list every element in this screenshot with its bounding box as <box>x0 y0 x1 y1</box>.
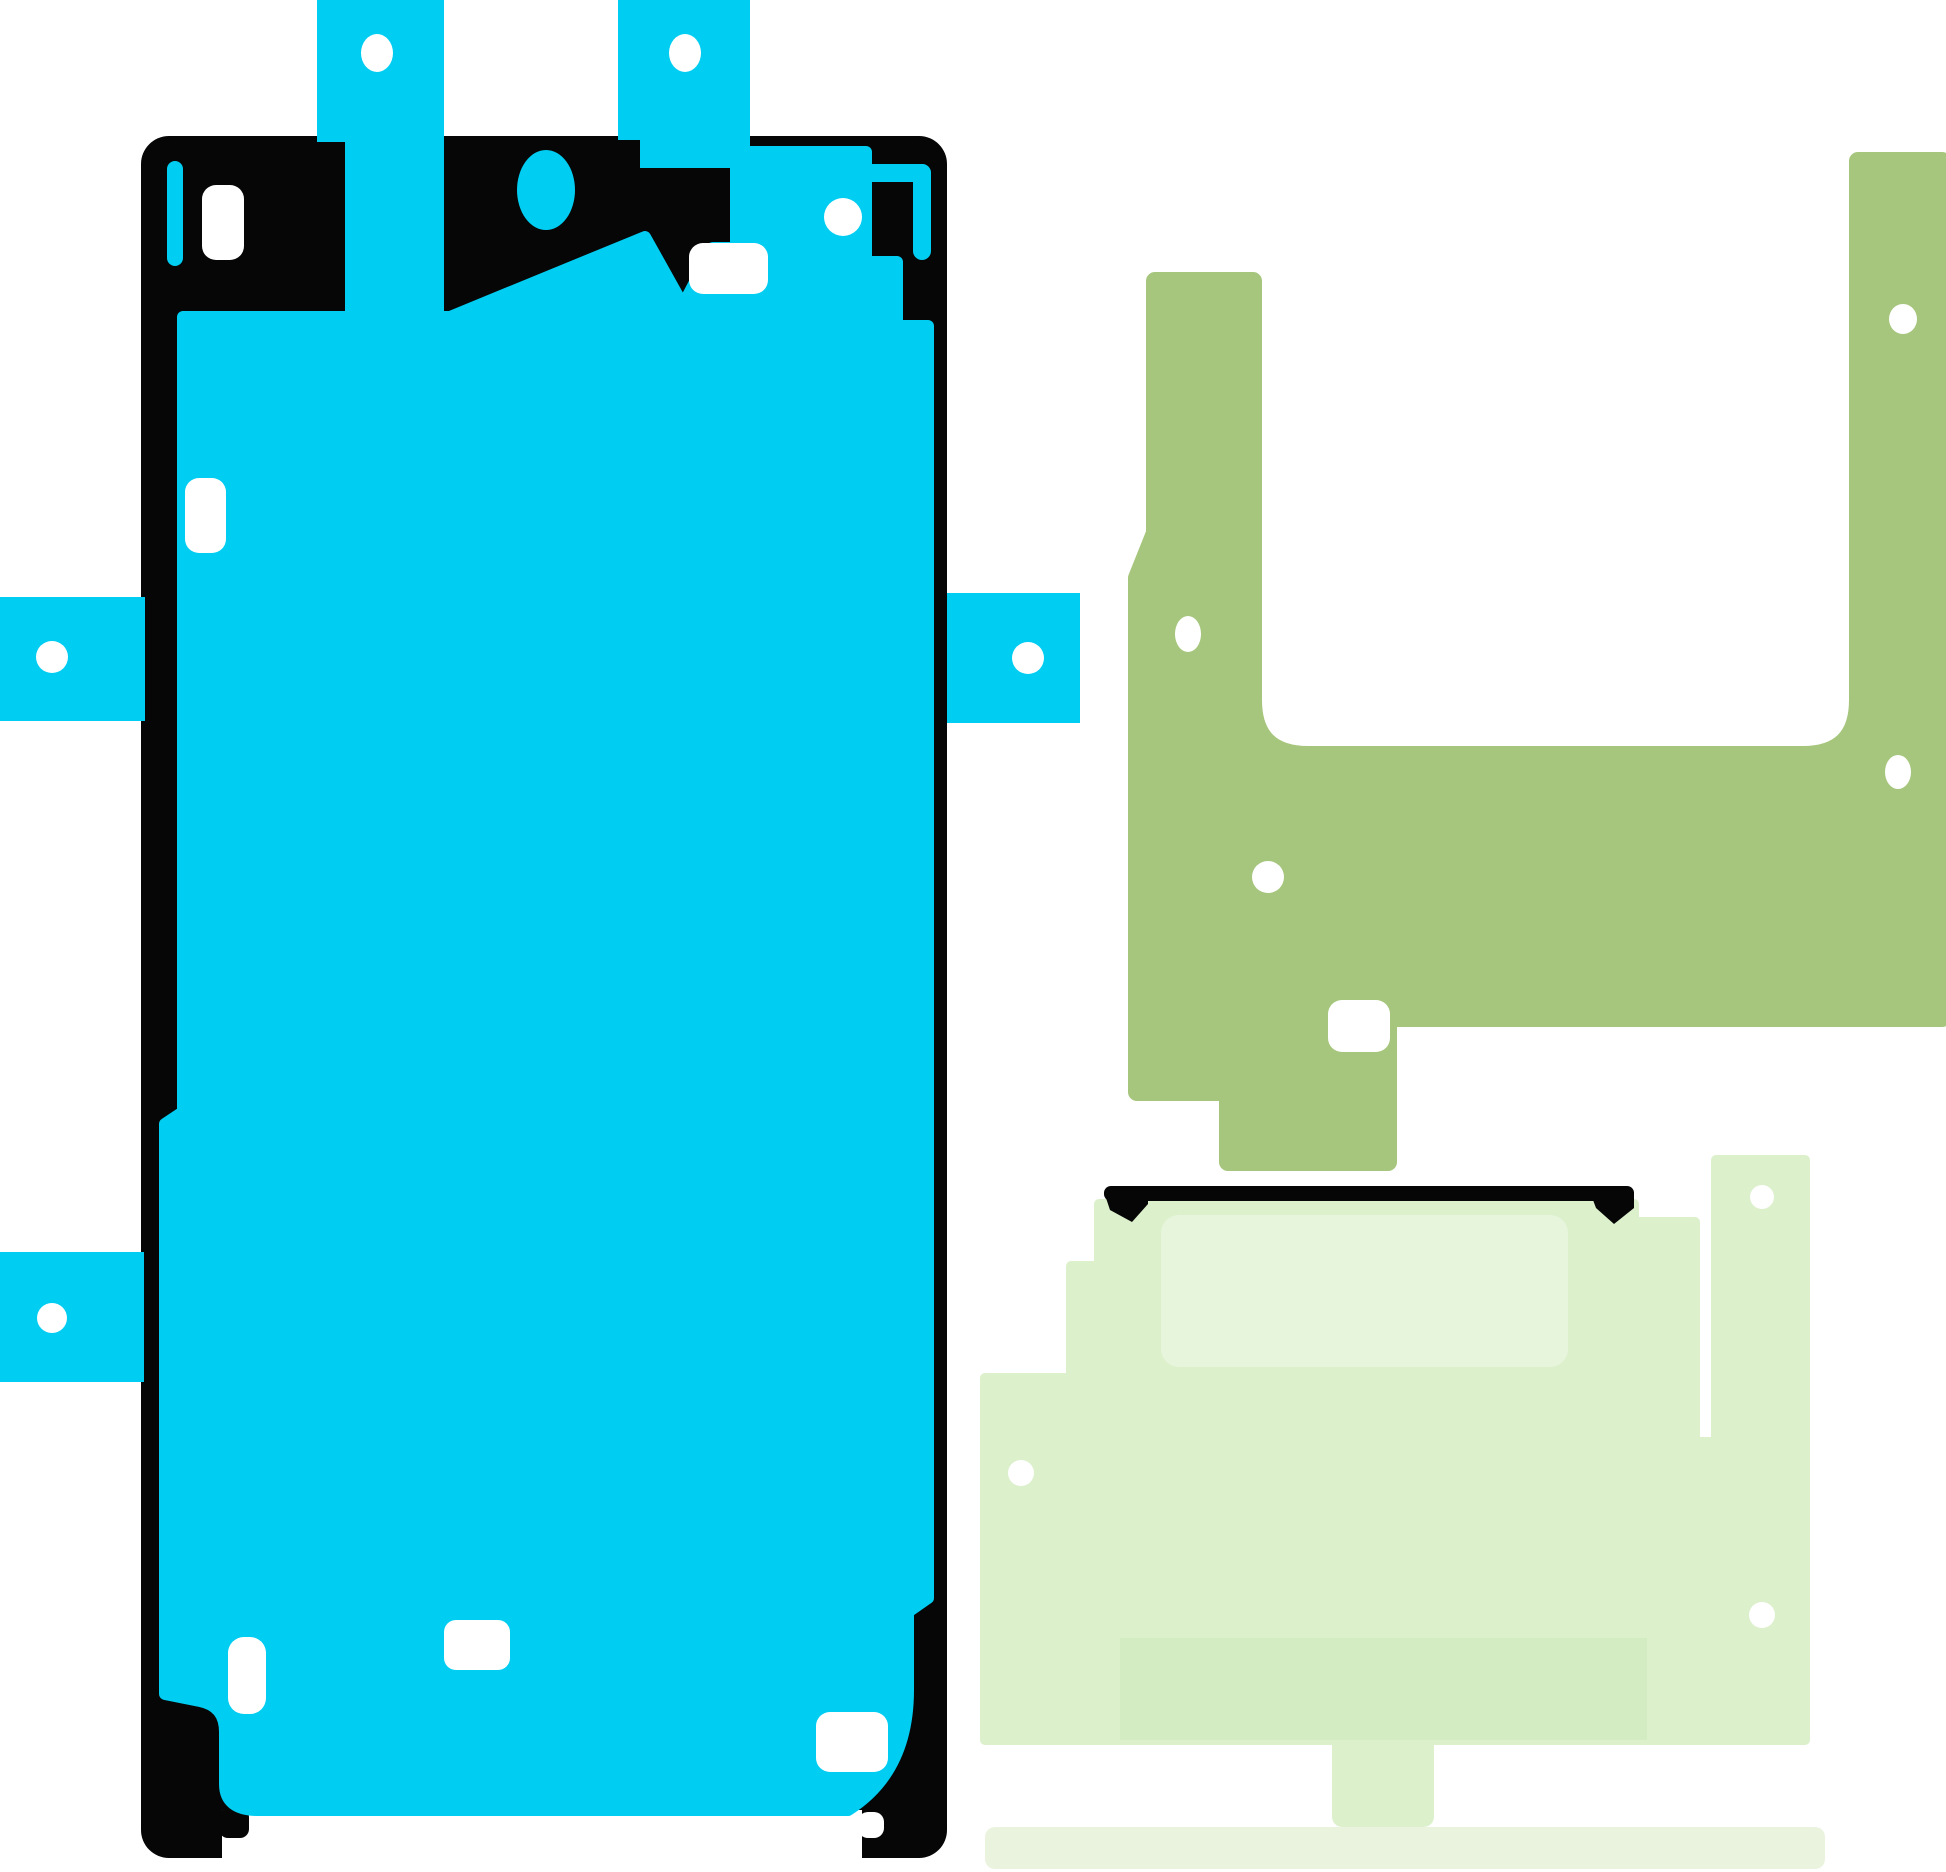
product-image-canvas <box>0 0 1946 1872</box>
rework-adhesive-bottom-sheet <box>1120 1638 1647 1740</box>
frame-hole-right-arm <box>1889 304 1917 334</box>
bezel-slit-right-vertical <box>913 164 931 260</box>
bezel-slit-left <box>167 161 183 266</box>
tab-hole-top-left <box>361 34 393 72</box>
adhesive-set-illustration <box>0 0 1946 1872</box>
tab-hole-right <box>1012 642 1044 674</box>
gasket-edge-line <box>1104 1186 1634 1201</box>
tab-hole-top-right <box>669 34 701 72</box>
slot-top-center <box>689 243 768 294</box>
slot-top-left <box>202 185 244 260</box>
rework-adhesive-inner-sheet <box>1161 1215 1568 1367</box>
slot-bottom-center <box>444 1620 510 1670</box>
bottom-gap <box>222 1810 862 1872</box>
rework-adhesive-sticker <box>985 1160 1805 1822</box>
rework-hole-bottom-right <box>1749 1602 1775 1628</box>
pin-hole-top-right <box>824 198 862 236</box>
tab-hole-left-lower <box>37 1303 67 1333</box>
slot-left-middle <box>185 478 226 553</box>
pull-tab-left-upper <box>0 597 145 721</box>
rework-hole-top-right <box>1750 1185 1774 1209</box>
camera-cutout <box>517 150 575 230</box>
pull-tab-left-lower <box>0 1252 144 1382</box>
slot-bottom-left <box>228 1637 266 1714</box>
rework-hole-left <box>1008 1460 1034 1486</box>
right-leg-notch <box>858 1812 884 1838</box>
liner-strip <box>985 1827 1825 1869</box>
tab-channel-right <box>640 0 750 168</box>
frame-hole-right-lower <box>1885 755 1911 789</box>
slot-bottom-right <box>816 1712 888 1772</box>
frame-adhesive-notch <box>1328 1000 1390 1052</box>
screen-interior <box>165 152 928 1810</box>
screen-adhesive-sticker <box>0 0 1080 1872</box>
frame-hole-center <box>1252 861 1284 893</box>
tab-channel-left <box>345 0 444 322</box>
frame-hole-left-arm <box>1175 616 1201 652</box>
tab-hole-left-upper <box>36 641 68 673</box>
